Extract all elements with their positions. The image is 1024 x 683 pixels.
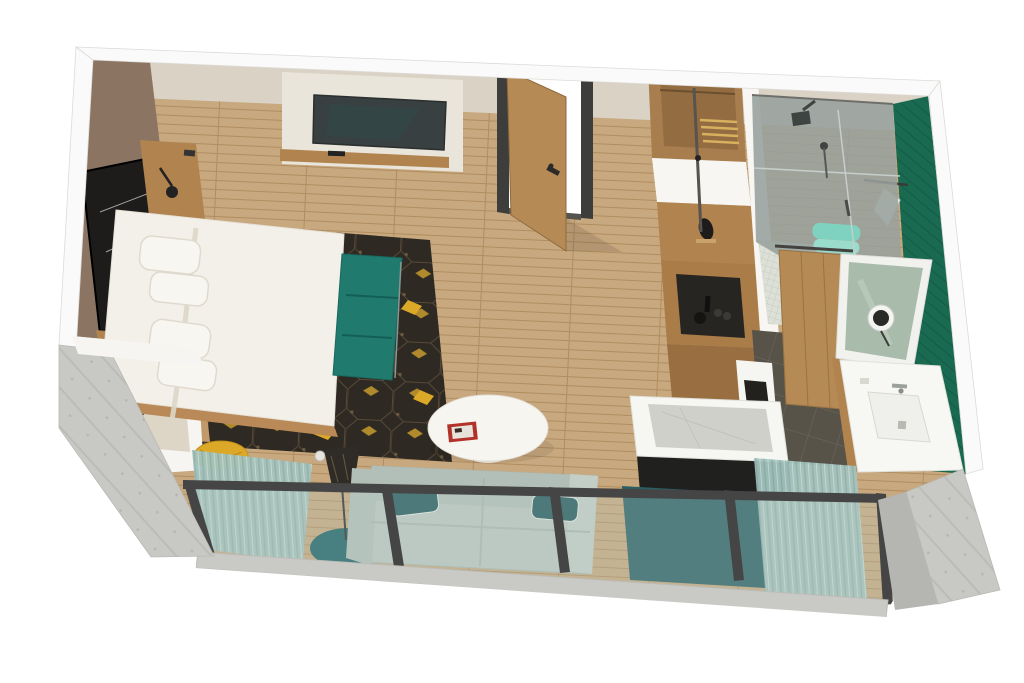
interior-scene <box>72 55 966 618</box>
floorplan-render <box>0 0 1024 683</box>
door-jamb-right <box>581 59 593 219</box>
tv-remote <box>328 151 345 157</box>
soap-dish <box>860 378 869 384</box>
red-book <box>447 421 478 442</box>
floorplan-stage <box>0 0 1024 683</box>
coffee-station-niche <box>676 274 745 338</box>
sink-drain <box>898 421 907 430</box>
teal-bench <box>333 254 402 380</box>
hall-door-handle <box>695 155 701 161</box>
closet-bulkhead <box>652 158 751 206</box>
king-bed <box>100 210 344 426</box>
oval-coffee-table <box>428 395 548 461</box>
